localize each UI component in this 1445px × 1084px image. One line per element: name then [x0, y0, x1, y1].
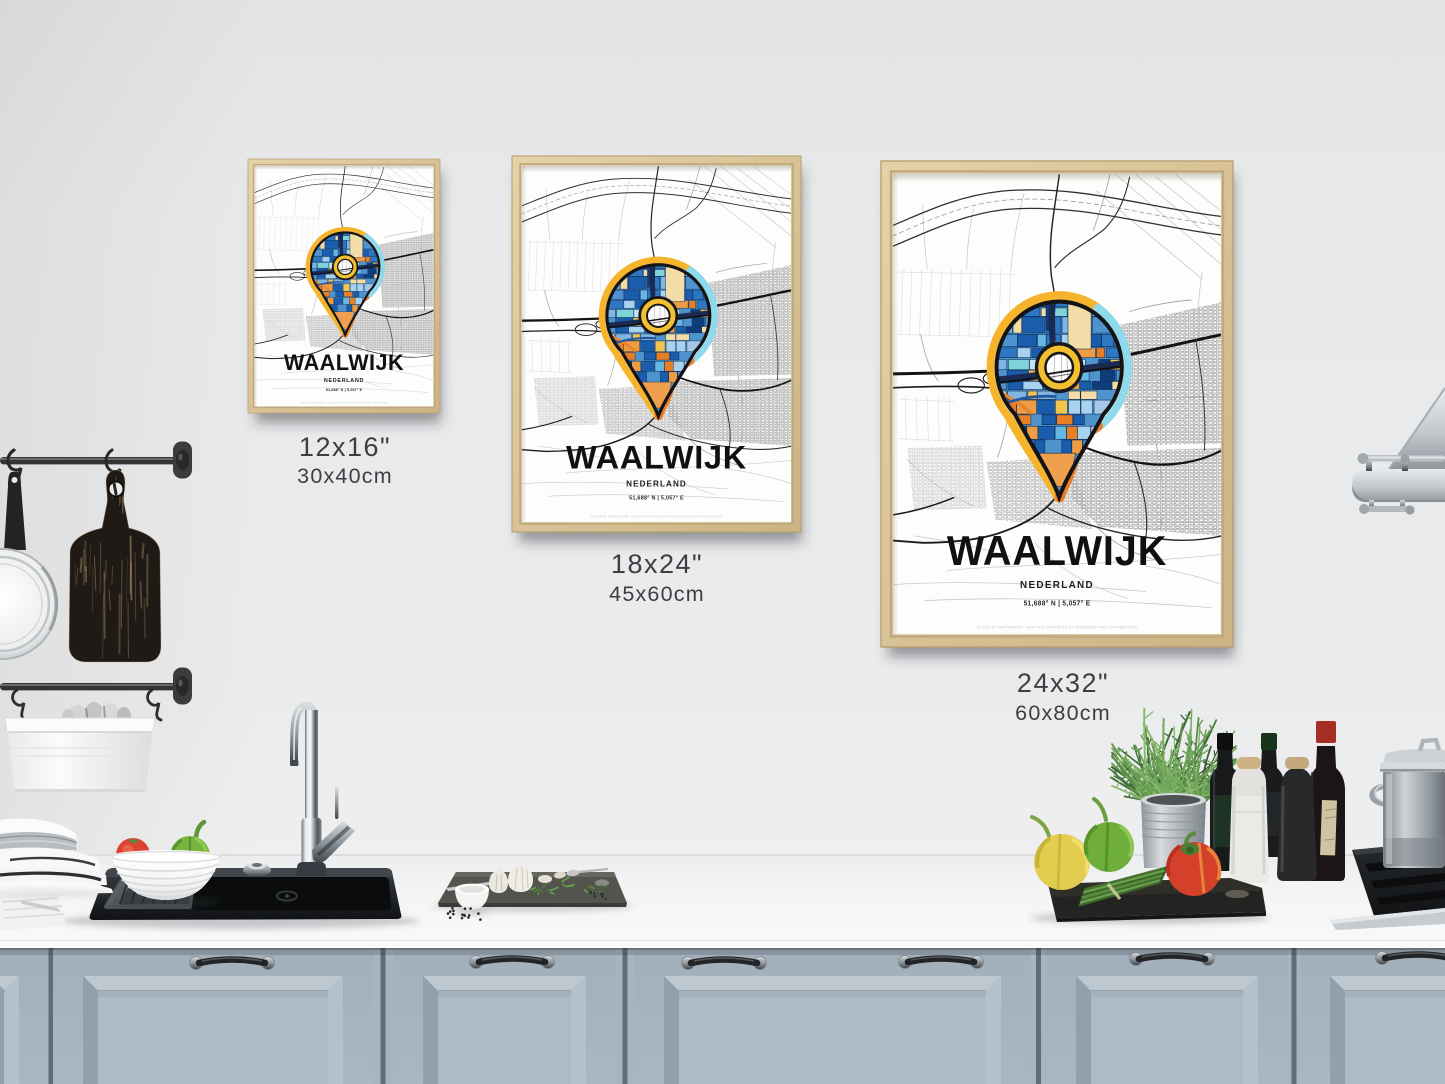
svg-text:30x40cm: 30x40cm [297, 464, 393, 488]
svg-text:45x60cm: 45x60cm [609, 582, 705, 606]
svg-text:24x32": 24x32" [1017, 668, 1109, 698]
svg-text:60x80cm: 60x80cm [1015, 701, 1111, 725]
svg-text:12x16": 12x16" [299, 432, 391, 462]
svg-text:18x24": 18x24" [611, 549, 703, 579]
